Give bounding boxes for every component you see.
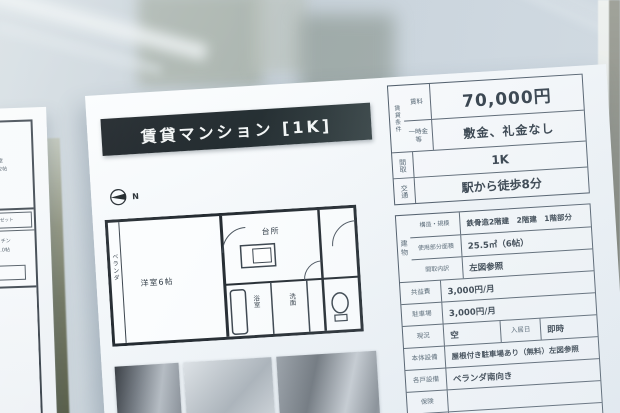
parking-label: 駐車場 <box>401 303 442 326</box>
listing-title: 賃貸マンション [1K] <box>140 111 333 147</box>
compass-icon <box>109 188 130 207</box>
glass-glare-streak <box>469 0 620 46</box>
western-room-label: 洋室6帖 <box>140 276 174 289</box>
rental-listing-poster: 賃貸マンション [1K] N <box>85 64 620 413</box>
adjacent-fixture <box>0 265 26 281</box>
adjacent-floor-plan: 洋室 約5.2帖 クローゼット キッチン 約3.0帖 <box>0 119 44 413</box>
compass: N <box>109 187 140 207</box>
property-photo-entrance <box>115 363 188 413</box>
listing-title-banner: 賃貸マンション [1K] <box>100 103 372 156</box>
building-reflection <box>252 0 307 72</box>
compass-north-label: N <box>132 191 139 200</box>
property-photo-exterior <box>276 351 385 413</box>
spec-tables: 賃貸条件 賃料 70,000円 一時金等 敷金、礼金なし 間取 <box>387 74 604 413</box>
move-in-value: 即時 <box>539 315 597 339</box>
adjacent-room-size: 約5.2帖 <box>0 165 7 174</box>
status-value: 空 <box>443 321 501 345</box>
kitchen-label: 台所 <box>261 225 280 237</box>
common-fee-label: 共益費 <box>400 281 441 304</box>
storefront-window-photo: 洋室 約5.2帖 クローゼット キッチン 約3.0帖 賃貸マンション [1K] <box>0 0 620 413</box>
washroom-label: 洗面 <box>286 292 297 306</box>
property-photo-kitchen <box>183 357 280 413</box>
rent-summary-table: 賃貸条件 賃料 70,000円 一時金等 敷金、礼金なし 間取 <box>387 74 590 206</box>
building-detail-table: 建物 構造・規模 鉄骨造2階建 2階建 1階部分 使用部分面積 25.5㎡（6帖… <box>395 203 604 413</box>
insurance-label: 保険 <box>407 390 448 413</box>
property-photos <box>115 351 386 413</box>
unit-facilities-label: 各戸設備 <box>405 369 446 392</box>
glass-glare-streak <box>0 0 208 61</box>
access-label: 交通 <box>394 178 415 204</box>
structure-label: 構造・規模 <box>409 212 460 237</box>
adjacent-room-2 <box>0 285 42 413</box>
bath-label: 浴室 <box>250 295 261 309</box>
layout-label: 間取 <box>392 152 413 178</box>
layout-detail-label: 間取内訳 <box>412 257 463 281</box>
floor-plan-drawing <box>105 205 364 347</box>
floor-plan: ベランダ 洋室6帖 台所 浴室 洗面 <box>105 205 364 347</box>
deposit-label: 一時金等 <box>404 120 433 152</box>
status-label: 現況 <box>403 325 444 348</box>
adjacent-kitchen-size: 約3.0帖 <box>0 245 35 256</box>
main-facilities-label: 本体設備 <box>404 347 445 370</box>
glass-glare-streak <box>0 22 162 75</box>
adjacent-listing-flyer: 洋室 約5.2帖 クローゼット キッチン 約3.0帖 <box>0 107 58 413</box>
rent-label: 賃料 <box>402 84 431 121</box>
adjacent-closet-label: クローゼット <box>0 211 32 229</box>
adjacent-room: 洋室 約5.2帖 <box>0 121 34 211</box>
adjacent-kitchen: キッチン 約3.0帖 <box>0 229 36 287</box>
building-reflection <box>138 0 263 87</box>
move-in-label: 入居日 <box>500 319 541 342</box>
veranda-label: ベランダ <box>110 253 121 281</box>
glass-glare-streak <box>506 0 620 58</box>
